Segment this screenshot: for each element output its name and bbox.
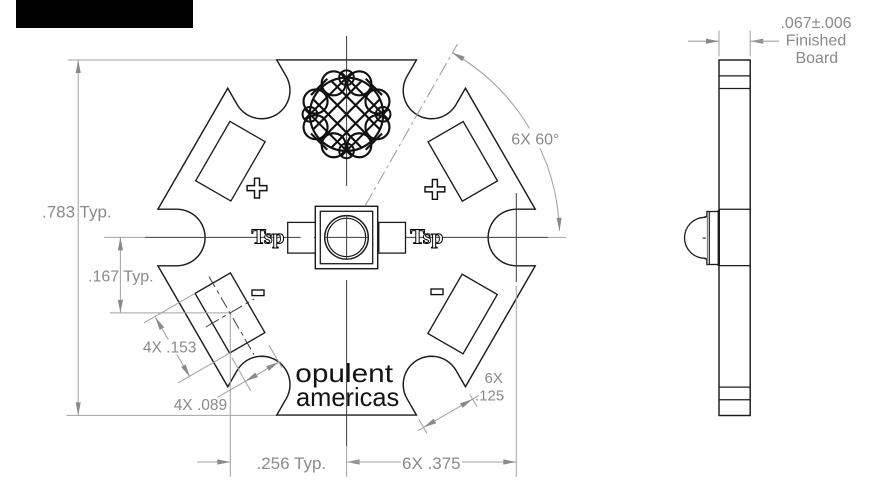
svg-text:Tsp: Tsp bbox=[410, 225, 443, 249]
svg-text:Finished: Finished bbox=[786, 33, 846, 50]
svg-text:6X .375: 6X .375 bbox=[402, 454, 461, 473]
svg-text:.067±.006: .067±.006 bbox=[780, 15, 851, 32]
svg-text:4X .089: 4X .089 bbox=[174, 397, 227, 414]
svg-text:Tsp: Tsp bbox=[252, 225, 285, 249]
svg-text:.256 Typ.: .256 Typ. bbox=[257, 454, 327, 473]
svg-text:.125: .125 bbox=[475, 388, 504, 405]
svg-text:Board: Board bbox=[795, 50, 838, 67]
svg-text:6X 60°: 6X 60° bbox=[511, 131, 559, 148]
svg-text:6X: 6X bbox=[485, 370, 503, 387]
svg-text:4X .153: 4X .153 bbox=[143, 340, 196, 357]
svg-text:.167 Typ.: .167 Typ. bbox=[88, 269, 154, 286]
svg-text:americas: americas bbox=[296, 382, 399, 412]
svg-text:.783 Typ.: .783 Typ. bbox=[42, 203, 112, 222]
